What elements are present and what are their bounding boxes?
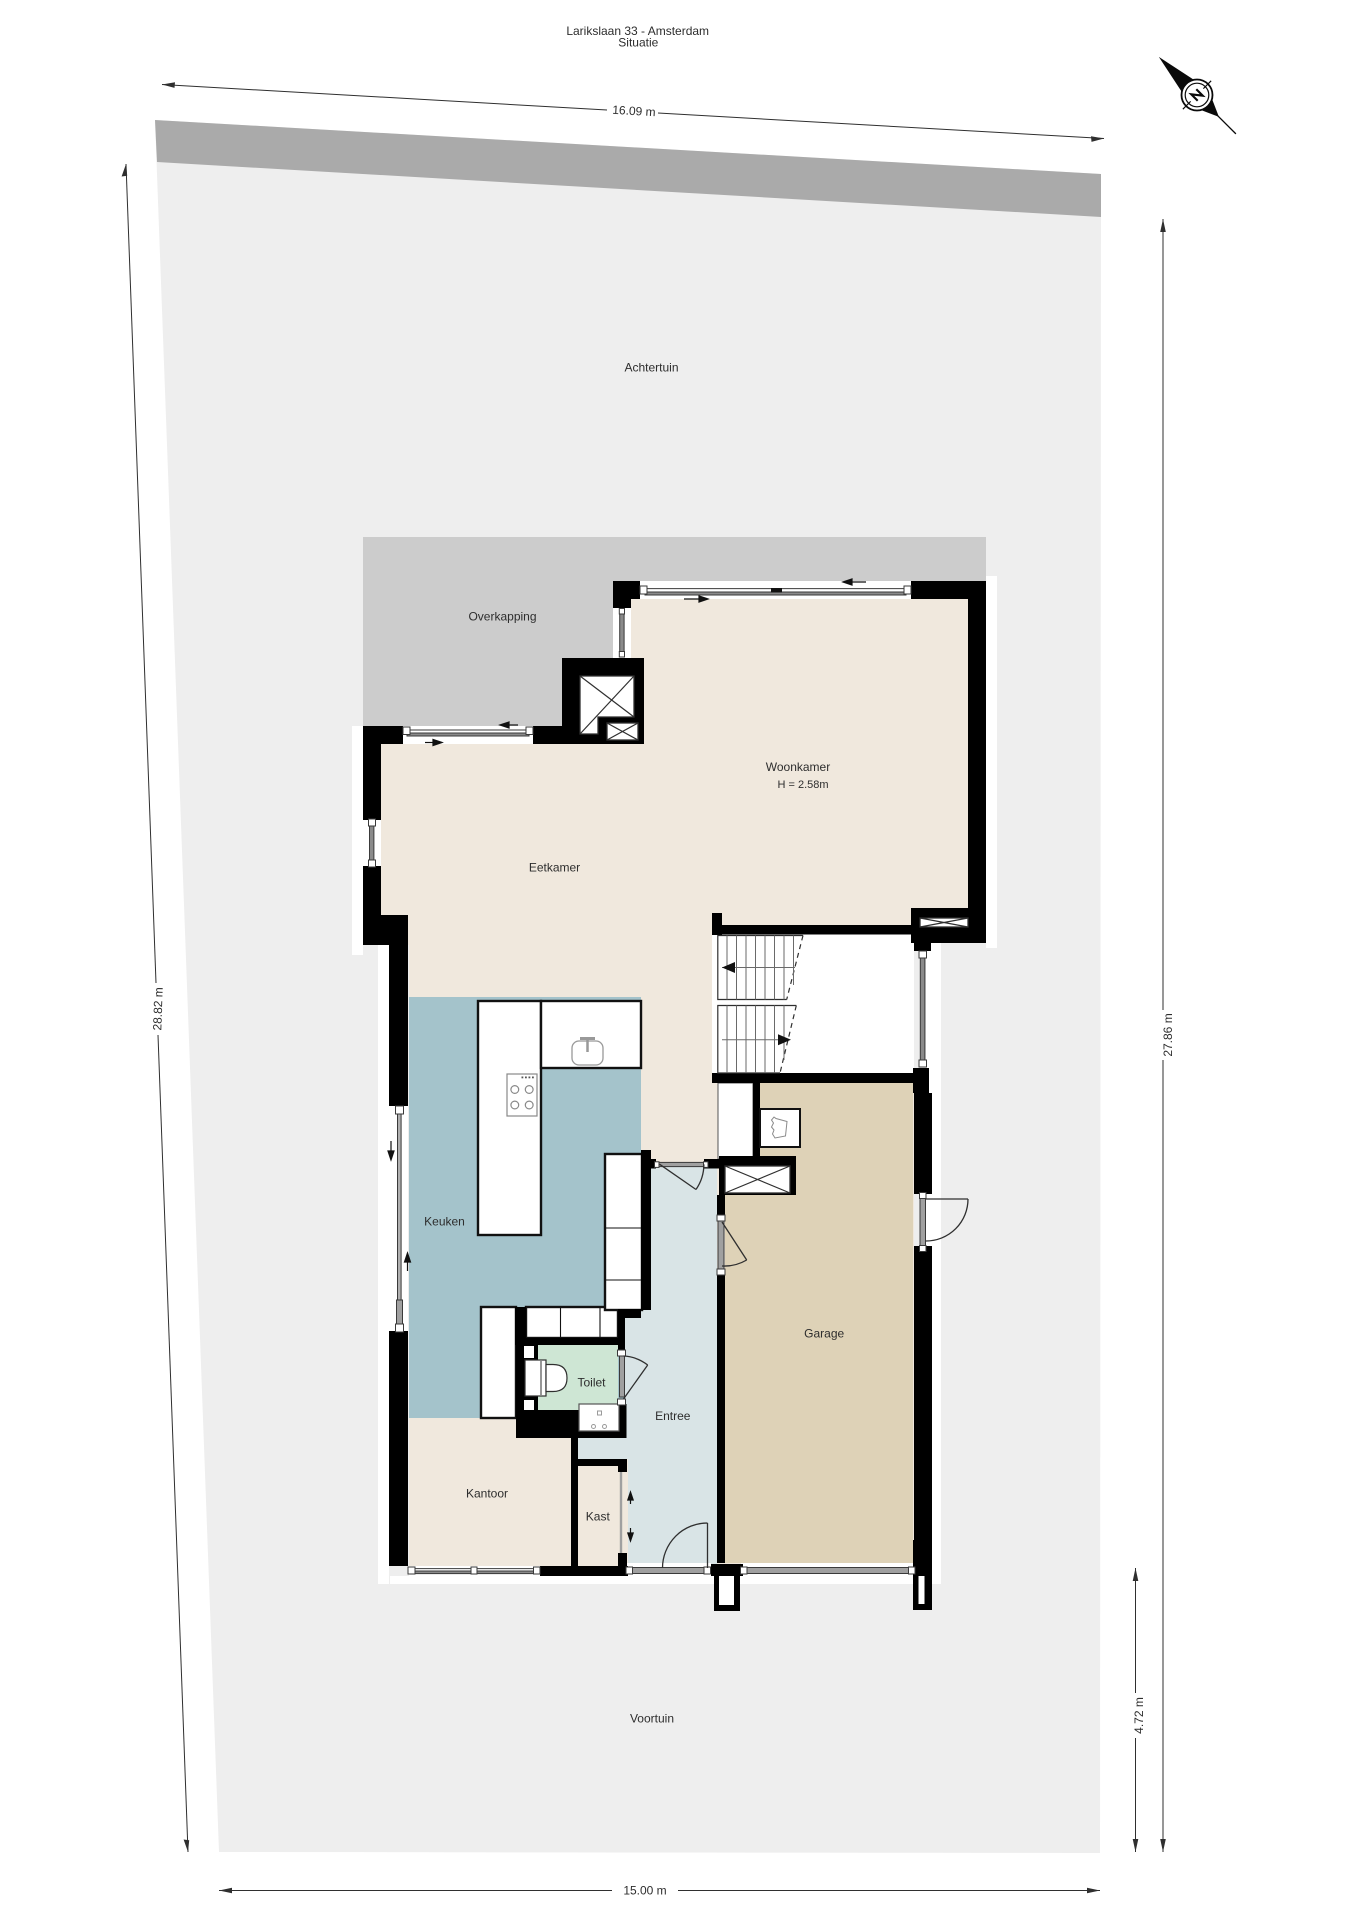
svg-text:16.09 m: 16.09 m [612,103,656,119]
svg-text:Garage: Garage [804,1327,844,1341]
svg-text:4.72 m: 4.72 m [1132,1697,1146,1734]
svg-text:Toilet: Toilet [577,1376,606,1390]
svg-text:Kantoor: Kantoor [466,1487,508,1501]
svg-text:Overkapping: Overkapping [468,610,536,624]
svg-text:Eetkamer: Eetkamer [529,861,580,875]
svg-text:15.00 m: 15.00 m [623,1884,666,1898]
svg-text:27.86 m: 27.86 m [1161,1013,1175,1056]
svg-text:Situatie: Situatie [618,36,658,50]
svg-text:Entree: Entree [655,1409,691,1423]
svg-text:28.82 m: 28.82 m [150,987,166,1031]
svg-text:Voortuin: Voortuin [630,1712,674,1726]
svg-text:Keuken: Keuken [424,1215,465,1229]
svg-text:H = 2.58m: H = 2.58m [777,779,828,791]
svg-text:Achtertuin: Achtertuin [624,361,678,375]
svg-text:Kast: Kast [586,1510,611,1524]
svg-text:Woonkamer: Woonkamer [766,760,830,774]
